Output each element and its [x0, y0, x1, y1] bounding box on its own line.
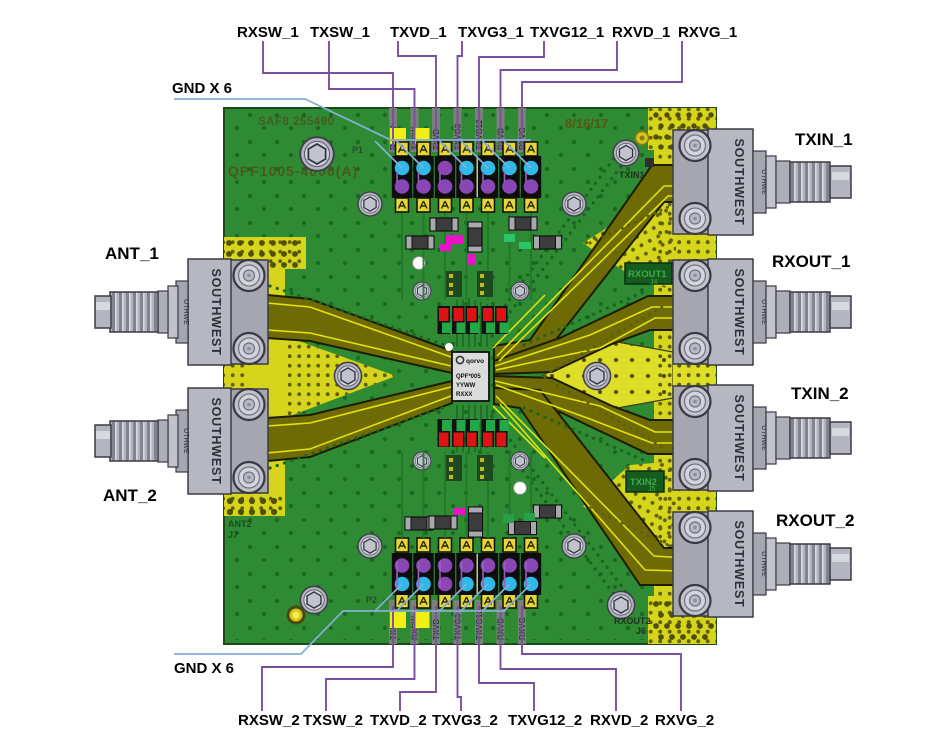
svg-text:ANT_1: ANT_1 [105, 244, 159, 263]
svg-text:SOUTHWEST: SOUTHWEST [209, 268, 223, 355]
svg-text:ANT_2: ANT_2 [103, 486, 157, 505]
svg-text:SAF8 255490: SAF8 255490 [258, 116, 334, 128]
svg-text:QPF1005-4000(A): QPF1005-4000(A) [228, 163, 358, 179]
svg-text:TXVD_2: TXVD_2 [370, 712, 427, 729]
svg-text:J5: J5 [648, 486, 656, 493]
svg-text:UTHWE: UTHWE [182, 428, 189, 454]
svg-text:RXVD_2: RXVD_2 [590, 712, 648, 729]
svg-text:RXOUT_1: RXOUT_1 [772, 252, 850, 271]
svg-text:TXSW_1: TXSW_1 [310, 24, 370, 41]
svg-text:P1: P1 [352, 145, 363, 155]
svg-text:RXOUT1: RXOUT1 [628, 269, 667, 280]
svg-text:TXIN1: TXIN1 [619, 170, 645, 180]
svg-text:RXSW_2: RXSW_2 [238, 712, 300, 729]
svg-text:UTHWE: UTHWE [182, 299, 189, 325]
svg-text:QPF*005: QPF*005 [456, 374, 481, 380]
svg-text:P2: P2 [366, 595, 377, 605]
svg-text:GND X 6: GND X 6 [172, 80, 232, 97]
svg-text:J4: J4 [650, 279, 658, 286]
svg-text:J6: J6 [636, 626, 646, 636]
svg-text:RXVD_1: RXVD_1 [612, 24, 670, 41]
svg-text:RXVG_2: RXVG_2 [655, 712, 714, 729]
svg-text:RXOUT_2: RXOUT_2 [776, 511, 854, 530]
svg-text:TXIN_1: TXIN_1 [795, 130, 853, 149]
svg-text:TXVD_1: TXVD_1 [390, 24, 447, 41]
svg-text:TXVG3_2: TXVG3_2 [432, 712, 498, 729]
svg-text:RXXX: RXXX [456, 392, 472, 398]
svg-text:SOUTHWEST: SOUTHWEST [732, 268, 746, 355]
svg-text:8/16/17: 8/16/17 [565, 116, 608, 131]
svg-text:RXSW_1: RXSW_1 [237, 24, 299, 41]
svg-text:RXVG_1: RXVG_1 [678, 24, 737, 41]
svg-text:RXOUT2: RXOUT2 [614, 616, 651, 626]
svg-text:TXSW_2: TXSW_2 [303, 712, 363, 729]
svg-text:SOUTHWEST: SOUTHWEST [732, 520, 746, 607]
svg-text:SOUTHWEST: SOUTHWEST [732, 394, 746, 481]
svg-text:SOUTHWEST: SOUTHWEST [732, 138, 746, 225]
svg-text:TXIN_2: TXIN_2 [791, 384, 849, 403]
svg-text:TXVG3_1: TXVG3_1 [458, 24, 524, 41]
svg-text:GND X 6: GND X 6 [174, 660, 234, 677]
svg-text:YYWW: YYWW [456, 383, 476, 389]
svg-text:ANT2: ANT2 [228, 519, 252, 529]
svg-text:J7: J7 [228, 530, 238, 540]
svg-text:qorvo: qorvo [466, 358, 484, 365]
svg-text:TXVG12_1: TXVG12_1 [530, 24, 604, 41]
svg-text:TXVG12_2: TXVG12_2 [508, 712, 582, 729]
svg-text:SOUTHWEST: SOUTHWEST [209, 397, 223, 484]
